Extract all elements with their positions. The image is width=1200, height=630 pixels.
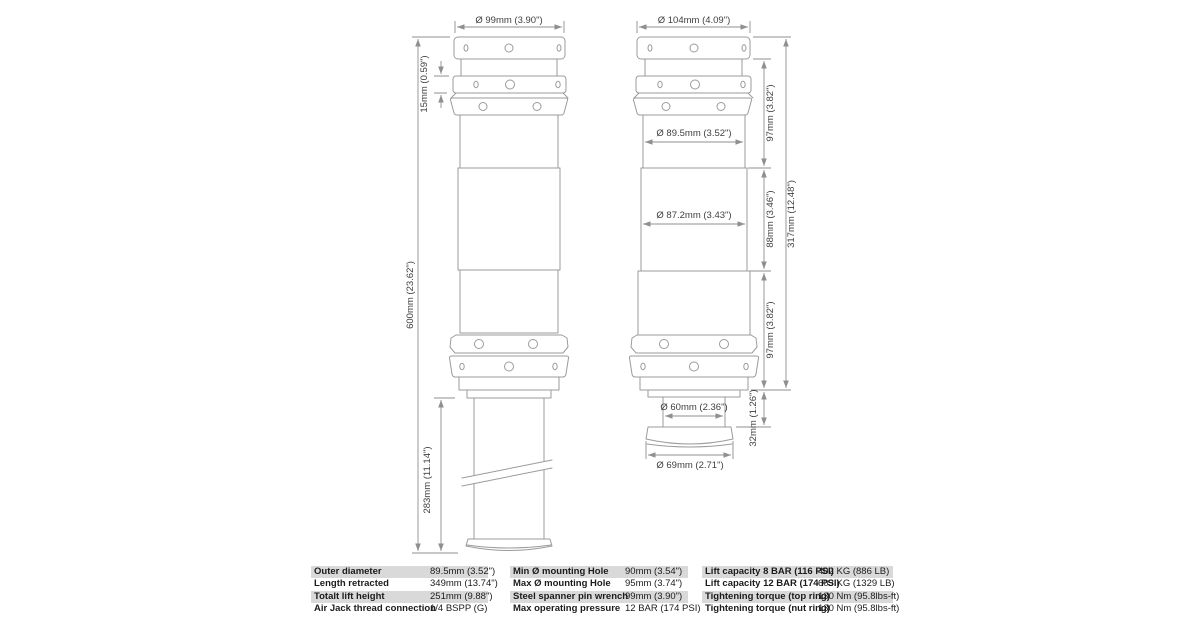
bottom-ring-hole bbox=[720, 340, 729, 349]
spec-label: Totalt lift height bbox=[314, 591, 430, 603]
spec-label: Tightening torque (top ring) bbox=[705, 591, 818, 603]
spec-table-mounting: Min Ø mounting Hole90mm (3.54")Max Ø mou… bbox=[510, 566, 688, 616]
dim-ext-rod-length: 283mm (11.14") bbox=[422, 446, 433, 513]
spec-label: Length retracted bbox=[314, 578, 430, 590]
spec-label: Lift capacity 8 BAR (116 PSI) bbox=[705, 566, 818, 578]
dim-ret-upper-dia: Ø 89.5mm (3.52") bbox=[656, 128, 731, 139]
spec-value: 130 Nm (95.8lbs-ft) bbox=[818, 591, 899, 603]
spec-label: Steel spanner pin wrench bbox=[513, 591, 625, 603]
dim-ext-top-width: Ø 99mm (3.90") bbox=[475, 15, 542, 26]
spec-row: Max Ø mounting Hole95mm (3.74") bbox=[510, 578, 688, 590]
cap-slot-hole bbox=[648, 45, 652, 51]
ring-center-hole bbox=[506, 80, 515, 89]
spec-label: Outer diameter bbox=[314, 566, 430, 578]
spec-value: 349mm (13.74") bbox=[430, 578, 498, 590]
spec-value: 251mm (9.88") bbox=[430, 591, 493, 603]
spec-value: 603 KG (1329 LB) bbox=[818, 578, 895, 590]
dim-ret-mid-h: 88mm (3.46") bbox=[765, 190, 776, 247]
ring-slot-hole bbox=[658, 81, 662, 87]
ring-slot-hole bbox=[741, 81, 745, 87]
nut-ring-hole bbox=[479, 103, 487, 111]
ring-slot-hole bbox=[556, 81, 560, 87]
ring-slot-hole bbox=[474, 81, 478, 87]
spec-row: Lift capacity 8 BAR (116 PSI)402 KG (886… bbox=[702, 566, 893, 578]
dim-ret-total-h: 317mm (12.48") bbox=[786, 180, 797, 248]
cap-center-hole bbox=[505, 44, 513, 52]
dim-ret-top-width: Ø 104mm (4.09") bbox=[658, 15, 731, 26]
air-jack-spec-sheet: Ø 99mm (3.90") Ø 104mm (4.09") 15mm (0.5… bbox=[0, 0, 1200, 630]
bottom-ring-slot bbox=[744, 363, 748, 369]
bottom-ring-slot bbox=[641, 363, 645, 369]
spec-row: Lift capacity 12 BAR (174 PSI)603 KG (13… bbox=[702, 578, 893, 590]
bottom-ring-hole bbox=[505, 362, 514, 371]
spec-value: 402 KG (886 LB) bbox=[818, 566, 889, 578]
spec-row: Air Jack thread connection1/4 BSPP (G) bbox=[311, 603, 488, 615]
bottom-ring-hole bbox=[660, 340, 669, 349]
bottom-ring-slot bbox=[460, 363, 464, 369]
cap-center-hole bbox=[690, 44, 698, 52]
nut-ring-hole bbox=[533, 103, 541, 111]
jack-extended-drawing bbox=[449, 37, 568, 551]
nut-ring-hole bbox=[662, 103, 670, 111]
dim-ret-mid-dia: Ø 87.2mm (3.43") bbox=[656, 210, 731, 221]
spec-row: Length retracted349mm (13.74") bbox=[311, 578, 488, 590]
spec-label: Tightening torque (nut ring) bbox=[705, 603, 818, 615]
spec-label: Max operating pressure bbox=[513, 603, 625, 615]
dim-ret-upper-h: 97mm (3.82") bbox=[765, 84, 776, 141]
bottom-ring-hole bbox=[475, 340, 484, 349]
spec-row: Totalt lift height251mm (9.88") bbox=[311, 591, 488, 603]
spec-row: Steel spanner pin wrench99mm (3.90") bbox=[510, 591, 688, 603]
dim-ext-total-height: 600mm (23.62") bbox=[405, 261, 416, 329]
spec-value: 90mm (3.54") bbox=[625, 566, 682, 578]
bottom-ring-hole bbox=[690, 362, 699, 371]
spec-row: Min Ø mounting Hole90mm (3.54") bbox=[510, 566, 688, 578]
spec-label: Min Ø mounting Hole bbox=[513, 566, 625, 578]
spec-label: Max Ø mounting Hole bbox=[513, 578, 625, 590]
nut-ring-hole bbox=[717, 103, 725, 111]
spec-value: 130 Nm (95.8lbs-ft) bbox=[818, 603, 899, 615]
spec-table-dimensions: Outer diameter89.5mm (3.52")Length retra… bbox=[311, 566, 488, 616]
cap-slot-hole bbox=[557, 45, 561, 51]
spec-row: Tightening torque (top ring)130 Nm (95.8… bbox=[702, 591, 893, 603]
dim-ext-ring-height: 15mm (0.59") bbox=[419, 55, 430, 112]
dim-ret-foot-dia: Ø 69mm (2.71") bbox=[656, 460, 723, 471]
spec-label: Lift capacity 12 BAR (174 PSI) bbox=[705, 578, 818, 590]
spec-value: 89.5mm (3.52") bbox=[430, 566, 495, 578]
dim-ret-stub-dia: Ø 60mm (2.36") bbox=[660, 402, 727, 413]
ring-center-hole bbox=[691, 80, 700, 89]
bottom-ring-hole bbox=[529, 340, 538, 349]
spec-row: Outer diameter89.5mm (3.52") bbox=[311, 566, 488, 578]
dim-ret-lower-h: 97mm (3.82") bbox=[765, 301, 776, 358]
spec-row: Max operating pressure12 BAR (174 PSI) bbox=[510, 603, 688, 615]
cap-slot-hole bbox=[742, 45, 746, 51]
dim-ret-stub-h: 32mm (1.26") bbox=[748, 389, 759, 446]
spec-row: Tightening torque (nut ring)130 Nm (95.8… bbox=[702, 603, 893, 615]
spec-label: Air Jack thread connection bbox=[314, 603, 430, 615]
bottom-ring-slot bbox=[553, 363, 557, 369]
jack-retracted-drawing bbox=[629, 37, 758, 447]
spec-value: 12 BAR (174 PSI) bbox=[625, 603, 701, 615]
spec-value: 99mm (3.90") bbox=[625, 591, 682, 603]
spec-value: 95mm (3.74") bbox=[625, 578, 682, 590]
technical-drawing: Ø 99mm (3.90") Ø 104mm (4.09") 15mm (0.5… bbox=[0, 0, 1200, 630]
cap-slot-hole bbox=[464, 45, 468, 51]
spec-table-capacity: Lift capacity 8 BAR (116 PSI)402 KG (886… bbox=[702, 566, 893, 616]
spec-value: 1/4 BSPP (G) bbox=[430, 603, 487, 615]
